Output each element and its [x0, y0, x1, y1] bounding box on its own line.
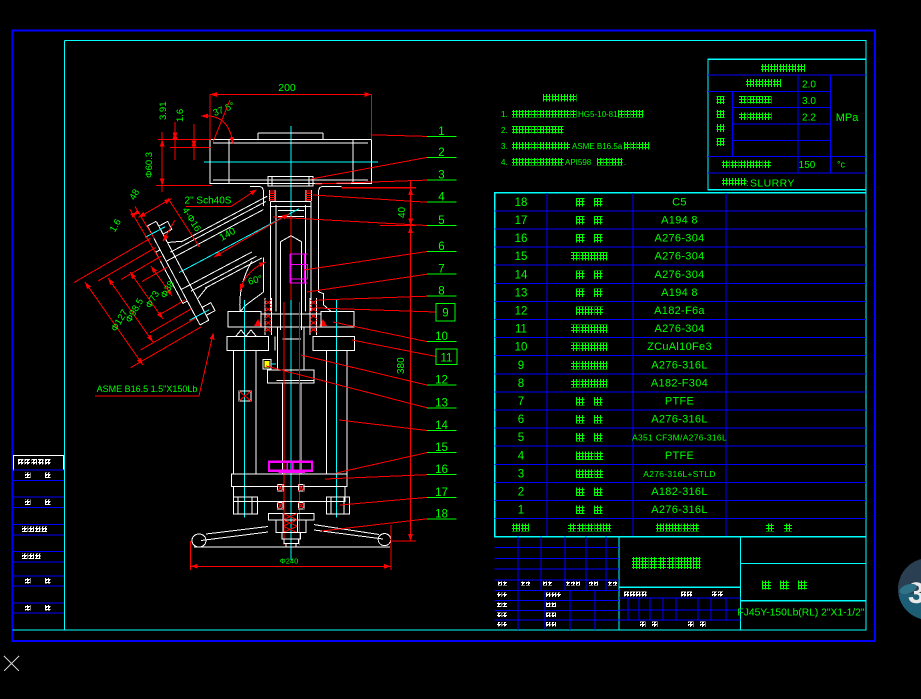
svg-text:A276-304: A276-304: [654, 269, 704, 281]
svg-text:ZCuAl10Fe3: ZCuAl10Fe3: [647, 341, 712, 353]
svg-text:13: 13: [515, 287, 528, 299]
svg-text:Φ60.3: Φ60.3: [144, 152, 155, 178]
svg-text:380: 380: [396, 357, 407, 374]
svg-text:9: 9: [518, 360, 524, 372]
svg-text:3.: 3.: [501, 142, 508, 151]
svg-text:A182-316L: A182-316L: [651, 486, 708, 498]
svg-text:.: .: [624, 158, 626, 167]
svg-text:5: 5: [438, 215, 444, 227]
svg-text:A182-F6a: A182-F6a: [654, 305, 705, 317]
svg-text:A276-316L+STLD: A276-316L+STLD: [643, 469, 715, 479]
svg-text:8: 8: [518, 378, 524, 390]
svg-text:2.2: 2.2: [802, 113, 816, 124]
svg-text:18: 18: [515, 197, 528, 209]
svg-text:11: 11: [441, 353, 453, 365]
svg-text:4: 4: [518, 450, 525, 462]
svg-text:2.0: 2.0: [802, 80, 816, 91]
svg-text:A276-316L: A276-316L: [651, 504, 708, 516]
svg-text:14: 14: [515, 269, 528, 281]
svg-text:13: 13: [435, 397, 448, 409]
svg-text:6: 6: [518, 414, 524, 426]
svg-text:3: 3: [908, 577, 921, 610]
svg-text::: :: [746, 178, 749, 188]
svg-text:18: 18: [435, 508, 448, 520]
svg-text:3.0: 3.0: [802, 96, 816, 107]
svg-text:2.: 2.: [501, 126, 508, 135]
svg-text:ASME B16.5a: ASME B16.5a: [572, 142, 623, 151]
svg-text:A276-304: A276-304: [654, 233, 704, 245]
svg-text:3: 3: [438, 170, 444, 182]
svg-text:12: 12: [515, 306, 528, 318]
svg-text:7: 7: [438, 264, 444, 276]
svg-text:12: 12: [435, 375, 448, 387]
svg-text:40: 40: [397, 206, 408, 218]
svg-text:7: 7: [518, 396, 524, 408]
svg-text:3.91: 3.91: [158, 102, 169, 121]
svg-text:PTFE: PTFE: [665, 396, 694, 408]
svg-text:2: 2: [518, 487, 524, 499]
svg-text:PTFE: PTFE: [665, 450, 694, 462]
svg-text:A182-F304: A182-F304: [651, 377, 708, 389]
svg-text:4: 4: [438, 192, 445, 204]
svg-text:4.: 4.: [501, 158, 508, 167]
svg-text:15: 15: [435, 442, 448, 454]
svg-text:17: 17: [515, 215, 528, 227]
svg-text:3: 3: [518, 468, 524, 480]
svg-text:A276-304: A276-304: [654, 251, 704, 263]
svg-text:6: 6: [438, 241, 444, 253]
svg-text:MPa: MPa: [836, 112, 860, 124]
svg-text:Φ240: Φ240: [280, 557, 299, 566]
svg-text:°c: °c: [837, 160, 846, 170]
svg-text:1: 1: [438, 126, 444, 138]
svg-text:1.6: 1.6: [175, 109, 186, 122]
svg-text:10: 10: [515, 342, 528, 354]
svg-text:A276-316L: A276-316L: [651, 414, 708, 426]
svg-text:15: 15: [515, 251, 528, 263]
svg-text:9: 9: [442, 308, 448, 320]
svg-text:17: 17: [435, 487, 448, 499]
svg-text:10: 10: [435, 331, 448, 343]
svg-text:A351 CF3M/A276-316L: A351 CF3M/A276-316L: [632, 433, 727, 443]
svg-text:ASME B16.5 1.5"X150Lb: ASME B16.5 1.5"X150Lb: [97, 384, 198, 394]
svg-text:150: 150: [799, 160, 816, 171]
svg-text:A194 8: A194 8: [661, 287, 698, 299]
svg-text:2: 2: [438, 147, 444, 159]
svg-text:5: 5: [518, 432, 524, 444]
svg-text:A276-316L: A276-316L: [651, 359, 708, 371]
svg-text:1: 1: [518, 505, 524, 517]
svg-text:16: 16: [515, 233, 528, 245]
svg-text:14: 14: [435, 420, 448, 432]
svg-text:16: 16: [435, 464, 448, 476]
svg-text:8: 8: [438, 286, 444, 298]
svg-text:1.: 1.: [501, 110, 508, 119]
svg-text:11: 11: [515, 324, 527, 336]
svg-text:HG5-10-81: HG5-10-81: [578, 110, 618, 119]
svg-text:C5: C5: [672, 196, 687, 208]
svg-text:SLURRY: SLURRY: [750, 178, 795, 190]
svg-text:A194 8: A194 8: [661, 215, 698, 227]
svg-text:API598: API598: [565, 158, 592, 167]
svg-text:A276-304: A276-304: [654, 323, 704, 335]
svg-text:2" Sch40S: 2" Sch40S: [185, 196, 232, 207]
svg-text:200: 200: [278, 82, 296, 94]
svg-text:FJ45Y-150Lb(RL) 2"X1-1/2": FJ45Y-150Lb(RL) 2"X1-1/2": [737, 608, 864, 619]
